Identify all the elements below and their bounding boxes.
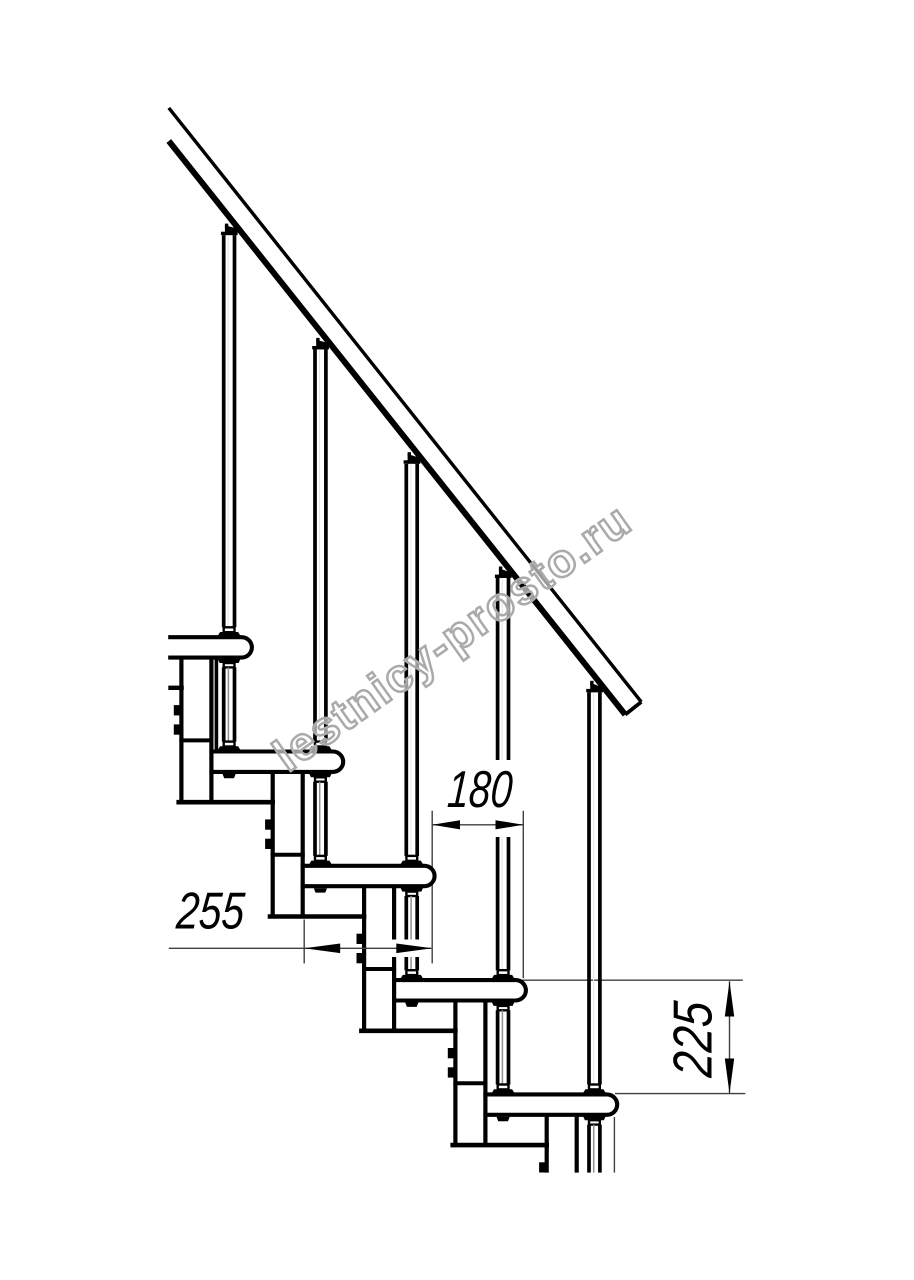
svg-text:225: 225	[661, 998, 723, 1079]
svg-text:lestnicy-prosto.ru: lestnicy-prosto.ru	[264, 493, 641, 781]
svg-text:180: 180	[446, 759, 515, 818]
svg-text:255: 255	[174, 882, 247, 940]
